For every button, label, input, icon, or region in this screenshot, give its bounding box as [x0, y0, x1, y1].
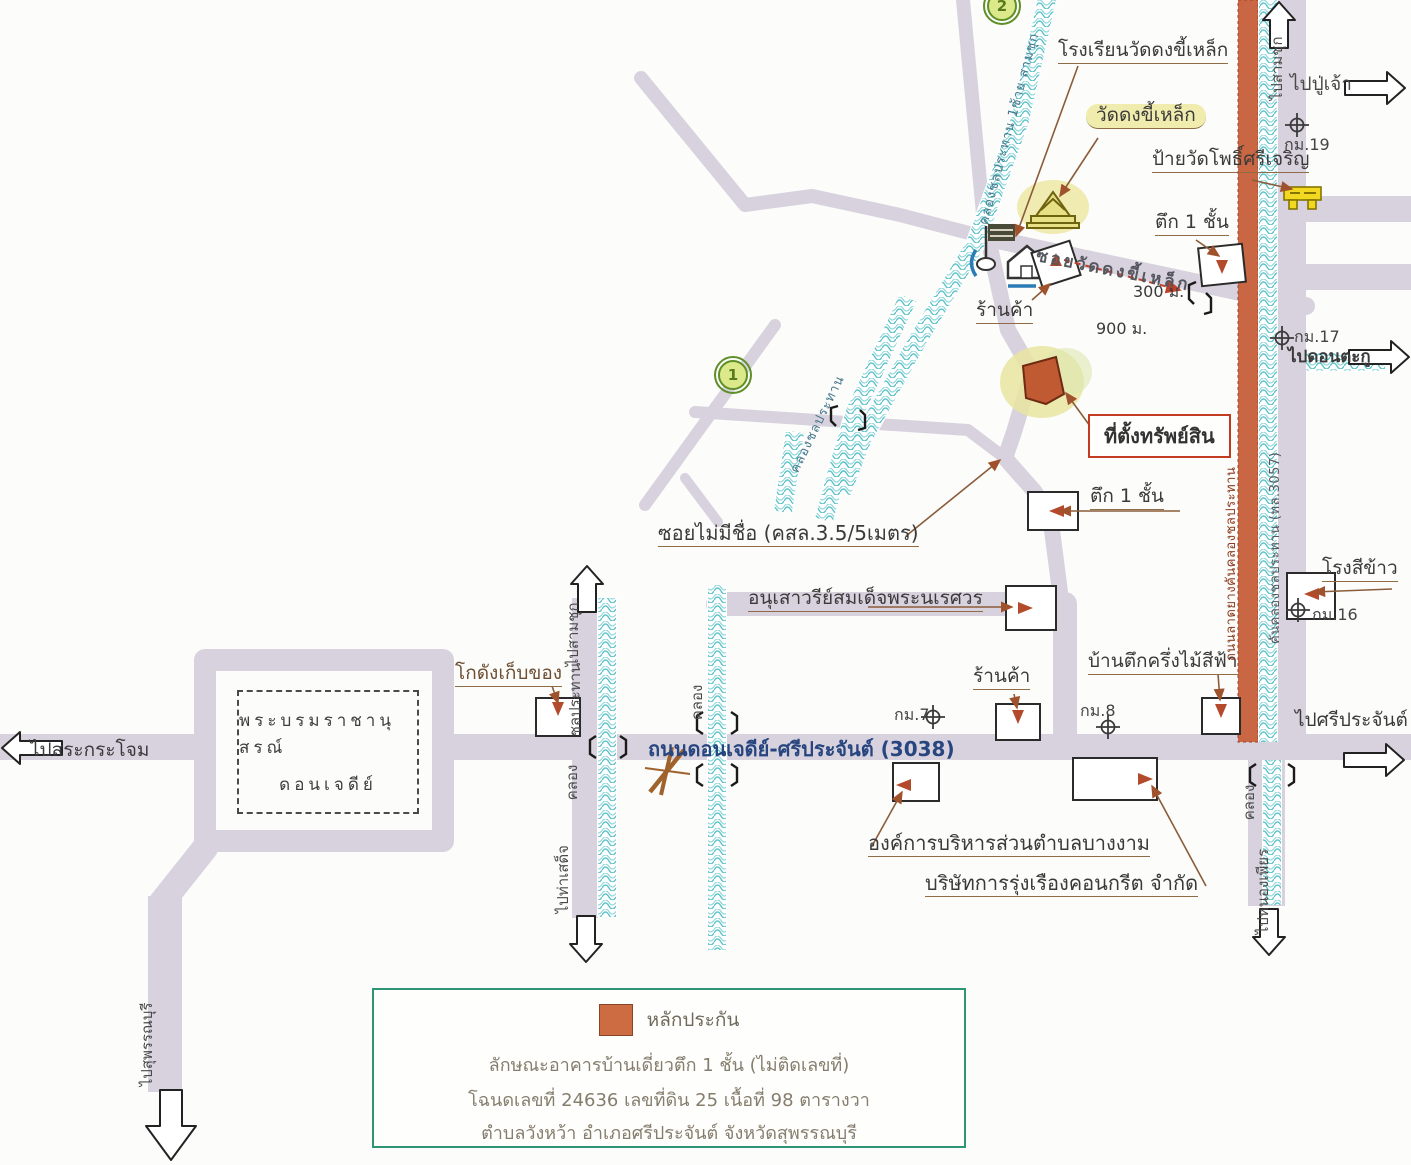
to-si-prachan-label: ไปศรีประจันต์	[1295, 710, 1408, 732]
dist-300-label: 300 ม.	[1133, 283, 1184, 301]
shop-bottom-label: ร้านค้า	[973, 666, 1030, 690]
legend-line1: ลักษณะอาคารบ้านเดี่ยวตึก 1 ชั้น (ไม่ติดเ…	[374, 1050, 964, 1079]
km7-label: กม.7	[894, 706, 930, 724]
collateral-label: หลักประกัน	[647, 1005, 740, 1035]
don-chedi-line1: พระบรมราชานุสรณ์	[239, 707, 417, 761]
warehouse-label: โกดังเก็บของ	[455, 663, 562, 687]
arrow-east-pu-chao	[1345, 72, 1405, 104]
naresuan-monument-label: อนุเสาวรีย์สมเด็จพระนเรศวร	[748, 588, 983, 612]
blue-house-label: บ้านตึกครึ่งไม้สีฟ้า	[1088, 651, 1238, 675]
canal-inner-diagonal	[824, 298, 908, 520]
to-nong-phian-label: ไปหนองเพียร	[1255, 849, 1272, 934]
circled-number-1: 1	[718, 360, 748, 390]
red-asphalt-canal-road	[1238, 0, 1258, 742]
to-sa-krajom-label: ไปสระกระโจม	[30, 740, 149, 762]
canal-road-name-label: คันคลองชลประทาน (ทล.3057)	[1269, 452, 1284, 644]
to-don-ta-ku-label: ไปดอนตะกู	[1288, 348, 1371, 368]
collateral-swatch	[599, 1004, 633, 1036]
don-chedi-line2: ดอนเจดีย์	[279, 771, 377, 798]
dist-900-label: 900 ม.	[1096, 320, 1147, 338]
arrow-south-suphan-buri	[146, 1090, 196, 1160]
km16-label: กม.16	[1312, 606, 1358, 624]
legend-line2: โฉนดเลขที่ 24636 เลขที่ดิน 25 เนื้อที่ 9…	[374, 1085, 964, 1114]
shop-top-label: ร้านค้า	[976, 300, 1033, 324]
to-sam-chuk-left-label: ไปสามชุก	[565, 602, 582, 666]
khlong-left-label: คลอง	[564, 765, 581, 801]
sao-bang-ngam-label: องค์การบริหารส่วนตำบลบางงาม	[868, 832, 1150, 857]
don-chedi-monument-box: พระบรมราชานุสรณ์ ดอนเจดีย์	[237, 690, 419, 814]
km19-label: กม.19	[1284, 136, 1330, 154]
khlong-right-label: คลอง	[1241, 785, 1258, 821]
chonprathan-label: ชลประทาน	[567, 663, 584, 737]
main-road-label: ถนนดอนเจดีย์-ศรีประจันต์ (3038)	[648, 738, 955, 761]
property-location-label: ที่ตั้งทรัพย์สิน	[1088, 414, 1231, 458]
ring-to-south-link	[162, 848, 205, 902]
direction-arrows	[2, 2, 1409, 1160]
school-label: โรงเรียนวัดดงขี้เหล็ก	[1058, 40, 1228, 64]
to-pu-chao-label: ไปปู่เจ้า	[1290, 74, 1352, 96]
km8-label: กม.8	[1080, 702, 1116, 720]
km17-side-road	[1300, 264, 1411, 290]
one-story-building-mid-label: ตึก 1 ชั้น	[1090, 486, 1164, 510]
to-tha-sadet-label: ไปท่าเสด็จ	[555, 845, 572, 913]
km17-label: กม.17	[1294, 328, 1340, 346]
road-stub	[685, 478, 718, 522]
legend-line3: ตำบลวังหว้า อำเภอศรีประจันต์ จังหวัดสุพร…	[374, 1118, 964, 1147]
arrow-south-tha-sadet	[570, 916, 602, 962]
concrete-company-label: บริษัทการรุ่งเรืองคอนกรีต จำกัด	[925, 872, 1198, 897]
to-suphan-buri-label: ไปสุพรรณบุรี	[139, 1003, 156, 1087]
to-sam-chuk-right-label: ไปสามชุก	[1269, 36, 1286, 100]
legend-box: หลักประกัน ลักษณะอาคารบ้านเดี่ยวตึก 1 ชั…	[372, 988, 966, 1148]
unnamed-soi-label: ซอยไม่มีชื่อ (คสล.3.5/5เมตร)	[658, 522, 919, 547]
one-story-building-top-label: ตึก 1 ชั้น	[1155, 212, 1229, 236]
rice-mill-label: โรงสีข้าว	[1322, 558, 1398, 582]
property-parcel	[1023, 357, 1064, 404]
upper-left-road	[641, 78, 988, 238]
khlong-center-label: คลอง	[689, 685, 706, 721]
sketch-map-don-chedi-si-prachan: โรงเรียนวัดดงขี้เหล็ก วัดดงขี้เหล็ก ป้าย…	[0, 0, 1411, 1165]
temple-label: วัดดงขี้เหล็ก	[1086, 104, 1206, 129]
red-road-name-label: ถนนลาดยางคันคลองชลประทาน	[1225, 467, 1240, 661]
